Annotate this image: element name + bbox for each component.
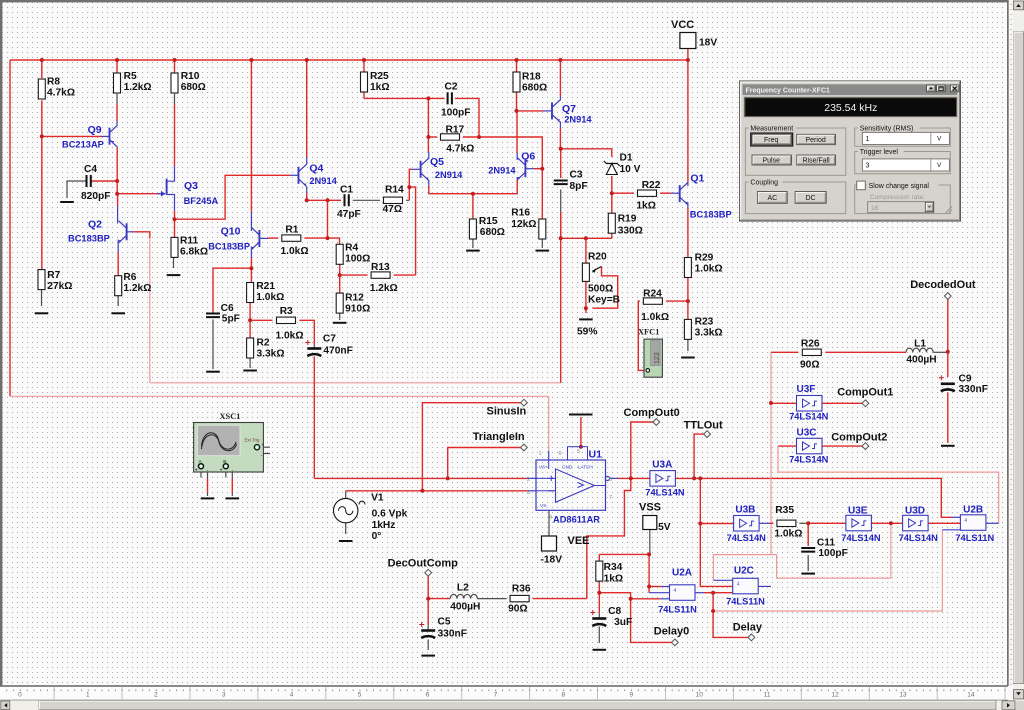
svg-text:R19: R19 (618, 214, 637, 225)
svg-text:1kHz: 1kHz (372, 520, 396, 531)
svg-text:500Ω: 500Ω (588, 284, 613, 295)
svg-text:R3: R3 (280, 306, 293, 317)
svg-text:5V: 5V (658, 522, 671, 533)
svg-text:Q7: Q7 (562, 103, 576, 115)
svg-text:R23: R23 (695, 317, 714, 328)
svg-text:R15: R15 (479, 216, 498, 227)
svg-text:8pF: 8pF (570, 181, 588, 192)
svg-text:1: 1 (86, 692, 90, 699)
svg-text:680Ω: 680Ω (181, 82, 206, 93)
svg-text:BF245A: BF245A (184, 196, 219, 206)
svg-text:820pF: 820pF (81, 191, 110, 202)
svg-text:CompOut2: CompOut2 (831, 432, 887, 444)
svg-text:12kΩ: 12kΩ (511, 219, 536, 230)
svg-text:R24: R24 (643, 289, 662, 300)
svg-text:18V: 18V (699, 38, 717, 49)
svg-text:Compression rate:: Compression rate: (870, 194, 926, 201)
svg-text:47pF: 47pF (337, 209, 361, 220)
svg-text:1.0kΩ: 1.0kΩ (695, 264, 723, 275)
svg-text:6: 6 (426, 692, 430, 699)
svg-text:90Ω: 90Ω (508, 604, 527, 615)
svg-text:5pF: 5pF (222, 314, 240, 325)
svg-text:VCC: VCC (671, 19, 694, 31)
svg-text:74LS14N: 74LS14N (841, 533, 881, 543)
svg-text:4: 4 (290, 692, 294, 699)
svg-text:2N914: 2N914 (435, 170, 463, 180)
svg-text:R20: R20 (588, 252, 607, 263)
svg-text:6.8kΩ: 6.8kΩ (180, 247, 208, 258)
svg-text:3: 3 (527, 490, 530, 496)
svg-text:74LS11N: 74LS11N (955, 533, 994, 543)
svg-text:U2C: U2C (734, 566, 754, 577)
svg-text:1: 1 (539, 451, 542, 457)
svg-text:U3E: U3E (848, 506, 868, 517)
svg-text:R18: R18 (522, 72, 541, 83)
svg-text:R2: R2 (257, 338, 270, 349)
svg-text:R12: R12 (345, 293, 364, 304)
svg-text:Q9: Q9 (88, 124, 102, 136)
svg-text:1.2kΩ: 1.2kΩ (370, 283, 398, 294)
svg-text:330nF: 330nF (438, 629, 467, 640)
svg-text:74LS11N: 74LS11N (658, 605, 697, 615)
svg-text:R7: R7 (47, 270, 60, 281)
svg-text:U3C: U3C (797, 428, 817, 439)
svg-text:TriangleIn: TriangleIn (473, 431, 525, 443)
svg-text:235.54 kHz: 235.54 kHz (824, 102, 877, 114)
svg-text:C3: C3 (570, 170, 583, 181)
svg-text:3.3kΩ: 3.3kΩ (695, 328, 723, 339)
svg-text:1.2kΩ: 1.2kΩ (124, 82, 152, 93)
svg-text:1.0kΩ: 1.0kΩ (641, 312, 669, 323)
svg-text:2N914: 2N914 (309, 176, 337, 186)
svg-text:9: 9 (629, 692, 633, 699)
svg-text:C7: C7 (323, 334, 336, 345)
svg-text:4.7kΩ: 4.7kΩ (446, 144, 474, 155)
svg-text:R6: R6 (123, 272, 136, 283)
svg-text:Q4: Q4 (309, 163, 323, 175)
svg-text:R1: R1 (285, 225, 298, 236)
svg-text:V: V (937, 162, 942, 169)
svg-text:DC: DC (806, 195, 816, 202)
svg-text:100pF: 100pF (441, 108, 470, 119)
svg-text:U2A: U2A (672, 568, 692, 579)
svg-text:R29: R29 (695, 253, 714, 264)
svg-text:7: 7 (494, 692, 498, 699)
svg-text:VS+: VS+ (539, 465, 548, 470)
svg-text:1.0kΩ: 1.0kΩ (281, 246, 309, 257)
svg-text:13: 13 (899, 692, 907, 699)
svg-text:LATCH: LATCH (578, 465, 593, 470)
svg-text:680Ω: 680Ω (522, 83, 547, 94)
svg-text:+: + (261, 442, 264, 447)
svg-text:74LS14N: 74LS14N (899, 533, 939, 543)
svg-text:Q10: Q10 (221, 226, 241, 238)
svg-text:CompOut1: CompOut1 (837, 387, 893, 399)
svg-text:47Ω: 47Ω (383, 204, 403, 215)
svg-text:3: 3 (866, 163, 870, 170)
svg-text:C4: C4 (84, 164, 97, 175)
svg-text:Trigger level: Trigger level (860, 149, 899, 156)
svg-text:BC183BP: BC183BP (690, 210, 732, 220)
svg-text:1.2kΩ: 1.2kΩ (123, 283, 151, 294)
svg-text:R13: R13 (371, 262, 390, 273)
svg-text:R16: R16 (511, 208, 530, 219)
svg-text:2N914: 2N914 (488, 166, 516, 176)
svg-text:330Ω: 330Ω (618, 226, 643, 237)
svg-text:Period: Period (806, 137, 826, 144)
svg-text:GND: GND (562, 465, 573, 470)
svg-text:0.6 Vpk: 0.6 Vpk (372, 509, 408, 520)
svg-text:C11: C11 (817, 538, 835, 549)
svg-text:8: 8 (561, 692, 565, 699)
svg-text:U3D: U3D (905, 506, 925, 517)
svg-text:R10: R10 (181, 71, 200, 82)
svg-text:Key=B: Key=B (588, 295, 620, 306)
svg-text:U3F: U3F (797, 384, 816, 395)
svg-text:3: 3 (222, 692, 226, 699)
svg-text:C5: C5 (438, 617, 451, 628)
svg-text:1.0kΩ: 1.0kΩ (276, 331, 304, 342)
svg-text:4: 4 (549, 515, 552, 521)
svg-text:74LS14N: 74LS14N (789, 412, 829, 422)
svg-text:8: 8 (609, 477, 612, 483)
svg-text:74LS14N: 74LS14N (645, 488, 685, 498)
svg-text:59%: 59% (577, 327, 597, 338)
svg-text:680Ω: 680Ω (480, 227, 505, 238)
svg-text:74LS11N: 74LS11N (726, 597, 765, 607)
svg-text:L2: L2 (457, 583, 469, 594)
svg-text:2N914: 2N914 (564, 115, 592, 125)
svg-text:400µH: 400µH (450, 602, 480, 613)
svg-text:470nF: 470nF (323, 346, 352, 357)
svg-text:D1: D1 (620, 153, 633, 164)
svg-text:L1: L1 (914, 339, 926, 350)
svg-text:5: 5 (358, 692, 362, 699)
svg-text:Frequency Counter-XFC1: Frequency Counter-XFC1 (746, 87, 831, 94)
svg-text:+: + (195, 468, 198, 474)
svg-text:910Ω: 910Ω (345, 304, 370, 315)
svg-text:10: 10 (696, 692, 704, 699)
svg-text:R22: R22 (642, 180, 661, 191)
svg-text:U2B: U2B (963, 505, 983, 516)
svg-text:3uF: 3uF (614, 617, 632, 628)
svg-text:2: 2 (527, 477, 530, 483)
svg-text:0: 0 (18, 692, 22, 699)
svg-text:Delay0: Delay0 (654, 626, 689, 638)
svg-text:Sensitivity (RMS): Sensitivity (RMS) (860, 126, 914, 133)
svg-text:R4: R4 (345, 243, 358, 254)
svg-text:27kΩ: 27kΩ (47, 281, 72, 292)
svg-text:R5: R5 (124, 71, 137, 82)
svg-text:-18V: -18V (541, 555, 563, 566)
svg-text:16: 16 (871, 205, 879, 212)
svg-text:+: + (220, 468, 223, 474)
svg-text:1.0kΩ: 1.0kΩ (256, 292, 284, 303)
svg-text:74LS14N: 74LS14N (789, 455, 829, 465)
svg-text:Coupling: Coupling (750, 180, 778, 187)
svg-text:330nF: 330nF (959, 384, 988, 395)
svg-text:10 V: 10 V (620, 164, 641, 175)
svg-text:R36: R36 (512, 584, 531, 595)
svg-text:SinusIn: SinusIn (487, 406, 527, 418)
svg-text:Q2: Q2 (88, 219, 102, 231)
svg-text:C8: C8 (608, 606, 621, 617)
svg-text:AC: AC (768, 195, 778, 202)
svg-text:1.0kΩ: 1.0kΩ (774, 529, 802, 540)
svg-text:Delay: Delay (733, 622, 763, 634)
svg-text:U3A: U3A (652, 460, 672, 471)
svg-text:1kΩ: 1kΩ (604, 574, 624, 585)
svg-text:90Ω: 90Ω (800, 360, 820, 371)
svg-text:123: 123 (654, 352, 661, 364)
svg-text:Freq: Freq (764, 137, 779, 144)
svg-text:2: 2 (154, 692, 158, 699)
svg-text:11: 11 (764, 692, 771, 699)
svg-text:C9: C9 (959, 374, 972, 385)
svg-text:1kΩ: 1kΩ (370, 82, 390, 93)
svg-text:BC213AP: BC213AP (62, 140, 104, 150)
svg-text:Ext Trig: Ext Trig (245, 438, 260, 443)
svg-text:C2: C2 (445, 82, 458, 93)
svg-text:100Ω: 100Ω (345, 254, 370, 265)
svg-text:DecodedOut: DecodedOut (910, 279, 976, 291)
svg-text:6: 6 (559, 451, 562, 457)
svg-text:400µH: 400µH (906, 355, 936, 366)
svg-text:Q6: Q6 (521, 151, 535, 163)
svg-text:BC183BP: BC183BP (68, 234, 110, 244)
svg-text:100pF: 100pF (818, 548, 847, 559)
svg-text:3.3kΩ: 3.3kΩ (257, 349, 285, 360)
svg-text:Q1: Q1 (690, 173, 704, 185)
svg-text:14: 14 (967, 692, 975, 699)
svg-text:Q3: Q3 (184, 180, 198, 192)
svg-text:C6: C6 (221, 303, 234, 314)
svg-text:C1: C1 (340, 185, 353, 196)
svg-text:R8: R8 (47, 77, 60, 88)
svg-text:TTLOut: TTLOut (684, 420, 723, 432)
svg-text:Slow change signal: Slow change signal (869, 183, 930, 190)
svg-text:12: 12 (831, 692, 839, 699)
svg-text:BC183BP: BC183BP (208, 242, 250, 252)
svg-text:Pulse: Pulse (763, 158, 781, 165)
svg-text:R25: R25 (370, 71, 389, 82)
svg-text:U3B: U3B (735, 505, 755, 516)
svg-text:Measurement: Measurement (750, 126, 793, 133)
svg-text:XSC1: XSC1 (220, 412, 241, 421)
svg-text:R34: R34 (604, 562, 623, 573)
svg-text:V: V (937, 136, 942, 143)
svg-text:U1: U1 (589, 449, 603, 461)
svg-text:VSS: VSS (639, 502, 661, 514)
svg-text:7: 7 (609, 495, 612, 501)
svg-text:CompOut0: CompOut0 (624, 407, 680, 419)
svg-text:R14: R14 (385, 185, 404, 196)
svg-text:74LS14N: 74LS14N (727, 533, 767, 543)
svg-text:V1: V1 (371, 493, 384, 504)
svg-text:0°: 0° (372, 531, 382, 542)
svg-text:R21: R21 (256, 281, 275, 292)
svg-text:Rise/Fall: Rise/Fall (803, 158, 831, 165)
svg-text:1kΩ: 1kΩ (636, 201, 656, 212)
svg-text:R11: R11 (180, 236, 198, 247)
svg-text:AD8611AR: AD8611AR (553, 515, 600, 525)
svg-text:VEE: VEE (568, 535, 590, 547)
svg-text:XFC1: XFC1 (638, 328, 659, 337)
svg-text:Q5: Q5 (430, 156, 444, 168)
svg-text:VS-: VS- (540, 503, 548, 508)
svg-text:DecOutComp: DecOutComp (388, 558, 459, 570)
svg-text:R17: R17 (446, 125, 465, 136)
svg-text:R26: R26 (801, 339, 820, 350)
svg-text:1: 1 (866, 136, 870, 143)
svg-text:R35: R35 (775, 505, 794, 516)
svg-text:4.7kΩ: 4.7kΩ (47, 88, 75, 99)
svg-text:5: 5 (577, 449, 580, 455)
